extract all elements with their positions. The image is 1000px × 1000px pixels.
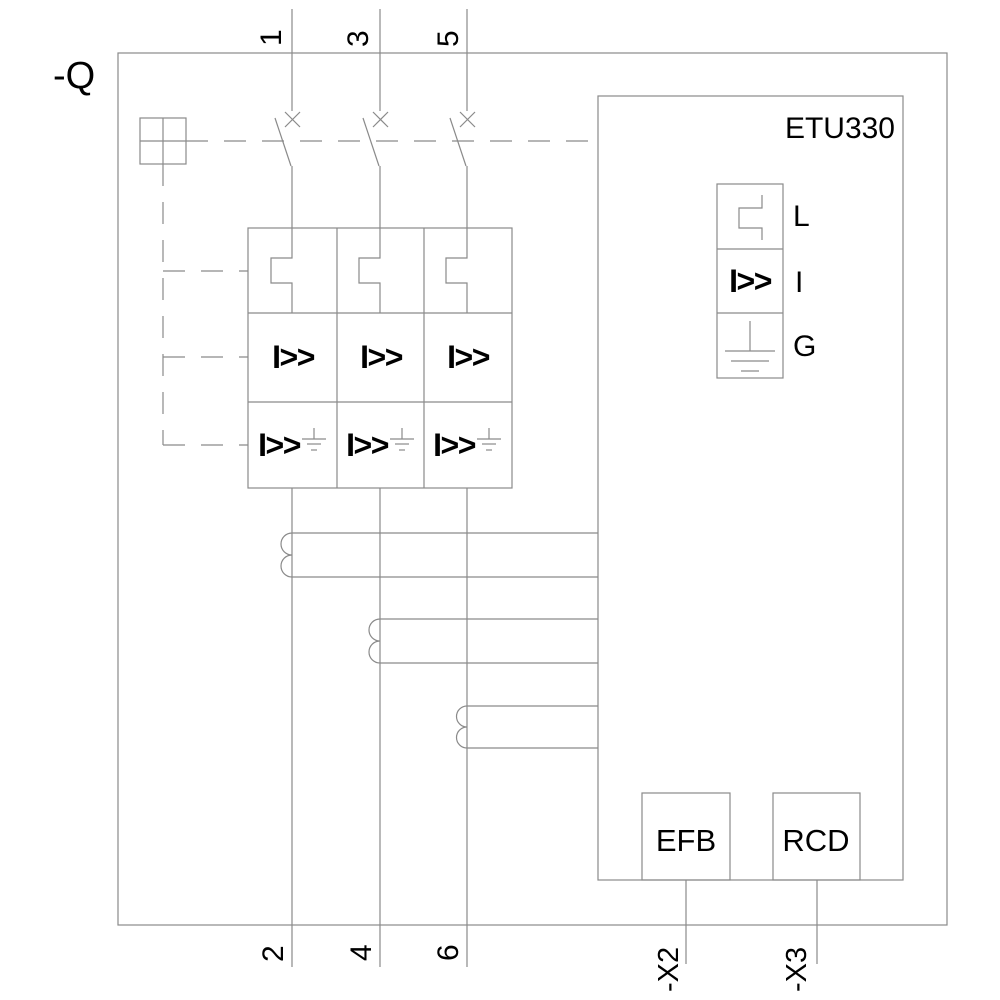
phase-3-long-time-trip-icon (446, 166, 467, 313)
function-label-long-time: L (793, 200, 810, 233)
etu-ground-fault-icon (725, 321, 775, 371)
matrix-ground-symbol-2: I>> (346, 427, 389, 463)
bottom-terminal-4: 4 (345, 944, 378, 961)
matrix-instantaneous-symbol-3: I>> (447, 339, 490, 375)
etu-long-time-icon (739, 195, 762, 240)
matrix-ground-symbol-1: I>> (258, 427, 301, 463)
phase-2-current-transformer-icon (369, 619, 598, 663)
bottom-terminal-6: 6 (432, 944, 465, 961)
enclosure-outline (118, 53, 947, 925)
phase-2-contact-cross-icon (373, 112, 388, 127)
trip-unit-name: ETU330 (785, 112, 895, 145)
phase-2-earth-icon (390, 428, 414, 450)
device-designation: -Q (53, 55, 95, 97)
phase-3-contact-cross-icon (460, 112, 475, 127)
phase-1-contact-cross-icon (285, 112, 300, 127)
top-terminal-3: 3 (342, 30, 375, 47)
top-terminal-1: 1 (255, 29, 288, 46)
etu-instantaneous-symbol: I>> (729, 263, 772, 299)
matrix-instantaneous-symbol-2: I>> (360, 339, 403, 375)
schematic-canvas: -Q 1 3 5 ETU330 I>> I>> I>> I>> I>> I>> … (0, 0, 1000, 1000)
etu-box (598, 96, 903, 880)
top-terminal-5: 5 (432, 30, 465, 47)
phase-3-earth-icon (477, 428, 501, 450)
matrix-ground-symbol-3: I>> (433, 427, 476, 463)
rcd-label: RCD (782, 823, 849, 858)
aux-terminal-x2: -X2 (653, 947, 685, 992)
function-label-ground-fault: G (793, 330, 816, 363)
phase-3-current-transformer-icon (457, 706, 598, 748)
phase-1-earth-icon (302, 428, 326, 450)
aux-terminal-x3: -X3 (781, 947, 813, 992)
phase-2-switch-blade-icon (363, 118, 379, 166)
phase-1-current-transformer-icon (281, 533, 598, 577)
function-label-instantaneous: I (795, 266, 803, 299)
phase-2-long-time-trip-icon (359, 166, 380, 313)
operating-mechanism-icon (140, 118, 186, 164)
phase-1-switch-blade-icon (275, 118, 291, 166)
phase-1-long-time-trip-icon (271, 166, 292, 313)
phase-3-switch-blade-icon (450, 118, 466, 166)
circuit-breaker-diagram: -Q 1 3 5 ETU330 I>> I>> I>> I>> I>> I>> … (0, 0, 1000, 1000)
efb-label: EFB (656, 823, 716, 858)
matrix-instantaneous-symbol-1: I>> (272, 339, 315, 375)
bottom-terminal-2: 2 (257, 945, 290, 962)
